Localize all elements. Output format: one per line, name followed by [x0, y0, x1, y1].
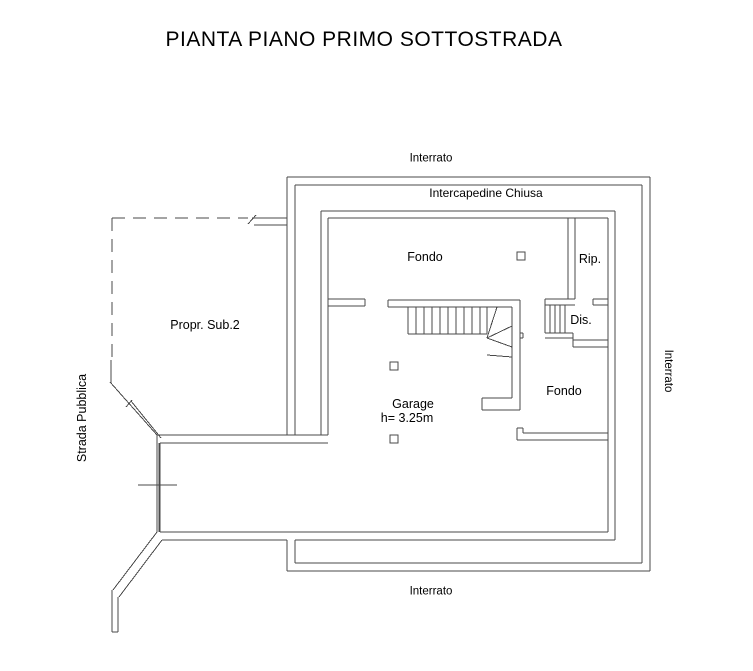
label-propr-sub2: Propr. Sub.2 [170, 319, 240, 332]
floor-plan-drawing [0, 0, 753, 671]
outer-boundary-walls [287, 177, 650, 571]
label-room-dis: Dis. [570, 314, 592, 327]
propr-sub2-boundary [111, 215, 287, 383]
label-strada-pubblica: Strada Pubblica [76, 374, 89, 462]
main-staircase [408, 307, 512, 357]
label-room-garage: Garage [392, 398, 434, 411]
label-interrato-top: Interrato [410, 153, 453, 165]
interior-walls [328, 218, 608, 440]
label-interrato-right: Interrato [661, 350, 673, 393]
label-room-rip: Rip. [579, 253, 601, 266]
label-intercapedine-chiusa: Intercapedine Chiusa [429, 187, 542, 199]
building-walls [160, 211, 615, 540]
floor-plan-page: PIANTA PIANO PRIMO SOTTOSTRADA Interrato… [0, 0, 753, 671]
label-room-fondo-top: Fondo [407, 251, 442, 264]
label-garage-height: h= 3.25m [381, 412, 433, 425]
dis-staircase [550, 305, 565, 333]
label-room-fondo-right: Fondo [546, 385, 581, 398]
label-interrato-bottom: Interrato [410, 586, 453, 598]
page-title: PIANTA PIANO PRIMO SOTTOSTRADA [166, 28, 563, 52]
